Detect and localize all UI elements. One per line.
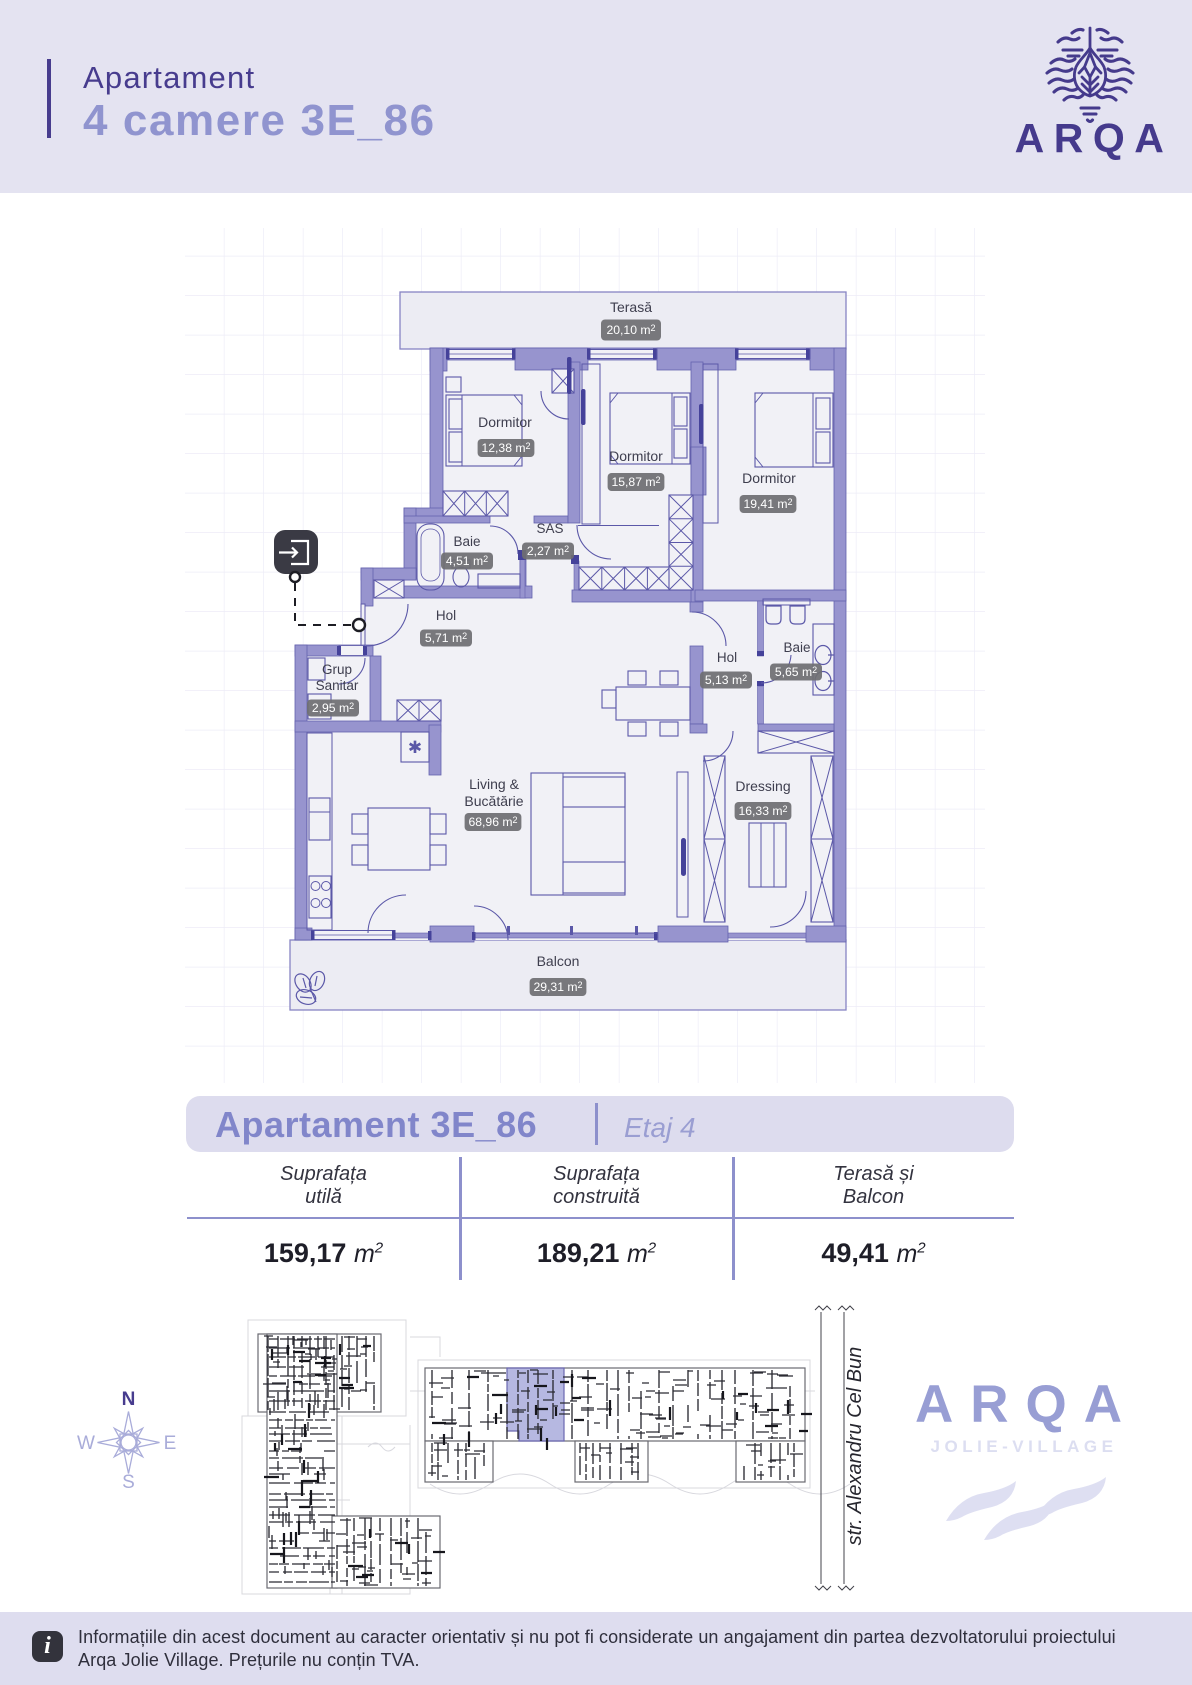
svg-text:Terasă: Terasă (610, 299, 652, 315)
svg-text:Hol: Hol (717, 650, 737, 665)
svg-text:S: S (122, 1472, 135, 1493)
svg-text:2,27 m2: 2,27 m2 (527, 544, 569, 558)
svg-text:N: N (122, 1389, 136, 1410)
svg-text:✱: ✱ (408, 738, 422, 757)
svg-text:12,38 m2: 12,38 m2 (481, 441, 530, 455)
svg-text:str. Alexandru Cel Bun: str. Alexandru Cel Bun (844, 1347, 866, 1546)
svg-text:Grup: Grup (322, 662, 352, 677)
svg-text:E: E (164, 1433, 177, 1454)
svg-text:19,41 m2: 19,41 m2 (743, 497, 792, 511)
svg-text:Dormitor: Dormitor (609, 448, 663, 464)
svg-text:5,13 m2: 5,13 m2 (705, 673, 747, 687)
svg-text:20,10 m2: 20,10 m2 (606, 323, 655, 337)
svg-text:15,87 m2: 15,87 m2 (611, 475, 660, 489)
svg-text:5,65 m2: 5,65 m2 (775, 665, 817, 679)
svg-text:16,33 m2: 16,33 m2 (738, 804, 787, 818)
svg-text:W: W (77, 1433, 95, 1454)
svg-text:68,96 m2: 68,96 m2 (468, 815, 517, 829)
svg-text:Baie: Baie (453, 534, 480, 549)
svg-text:2,95 m2: 2,95 m2 (312, 701, 354, 715)
svg-text:29,31 m2: 29,31 m2 (533, 980, 582, 994)
svg-text:Hol: Hol (436, 608, 456, 623)
svg-text:Dormitor: Dormitor (742, 470, 796, 486)
svg-text:5,71 m2: 5,71 m2 (425, 631, 467, 645)
svg-text:Baie: Baie (783, 640, 810, 655)
svg-text:Sanitar: Sanitar (316, 678, 359, 693)
svg-text:ARQA: ARQA (915, 1375, 1139, 1434)
svg-text:JOLIE-VILLAGE: JOLIE-VILLAGE (931, 1437, 1118, 1456)
svg-text:Living &: Living & (469, 776, 519, 792)
svg-text:Bucătărie: Bucătărie (464, 793, 523, 809)
svg-text:4,51 m2: 4,51 m2 (446, 554, 488, 568)
svg-text:Dressing: Dressing (735, 778, 790, 794)
svg-text:Balcon: Balcon (537, 953, 580, 969)
svg-text:Dormitor: Dormitor (478, 414, 532, 430)
svg-text:SAS: SAS (536, 521, 563, 536)
